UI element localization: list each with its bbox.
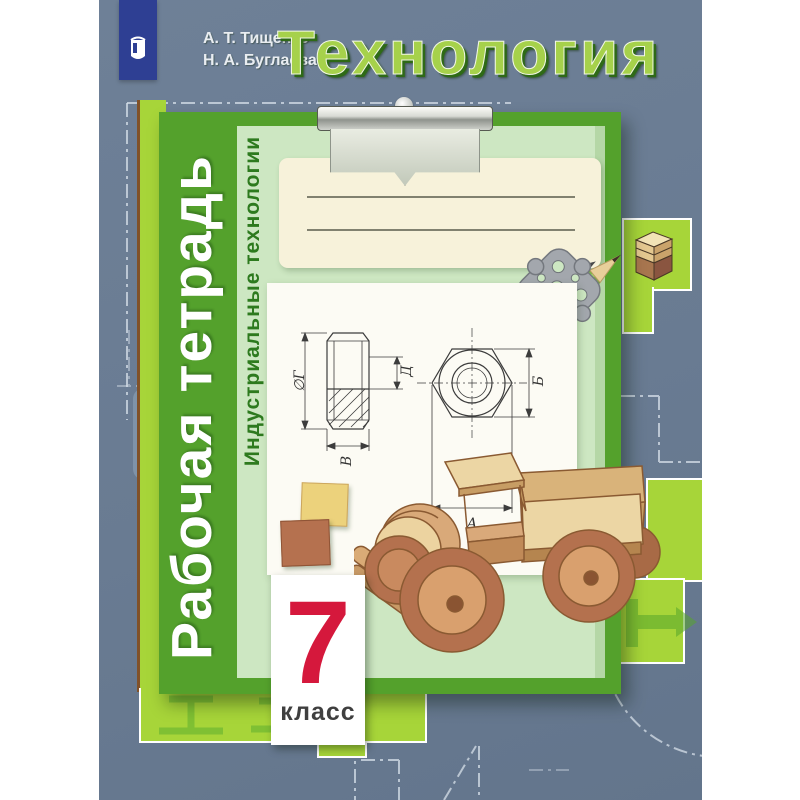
paper-line: [307, 196, 575, 198]
dim-label-d: Д: [399, 365, 415, 378]
grade-label: класс: [271, 698, 365, 727]
wooden-truck-illustration: [354, 432, 666, 668]
hatch-lines: [329, 389, 369, 427]
subtitle-vertical: Индустриальные технологии: [241, 133, 267, 469]
workbook-vertical-title: Рабочая тетрадь: [159, 117, 237, 697]
page-canvas: Рабочая тетрадь Индустриальные технологи…: [0, 0, 800, 800]
dim-label-diameter-g: ∅Г: [292, 370, 308, 392]
dim-label-v: В: [339, 456, 355, 467]
book-cover-photo: Рабочая тетрадь Индустриальные технологи…: [99, 0, 702, 800]
wood-square-brown: [280, 519, 331, 567]
grade-number: 7: [271, 589, 365, 698]
dim-label-b: Б: [531, 376, 547, 387]
clipboard-clip: [317, 106, 493, 131]
nut-side-view: [327, 333, 369, 429]
publisher-logo: [119, 0, 157, 80]
publisher-emblem-icon: [119, 0, 157, 80]
book-title: Технология: [277, 18, 660, 89]
nut-front-view: [417, 328, 527, 438]
grade-card: 7 класс: [271, 575, 365, 745]
